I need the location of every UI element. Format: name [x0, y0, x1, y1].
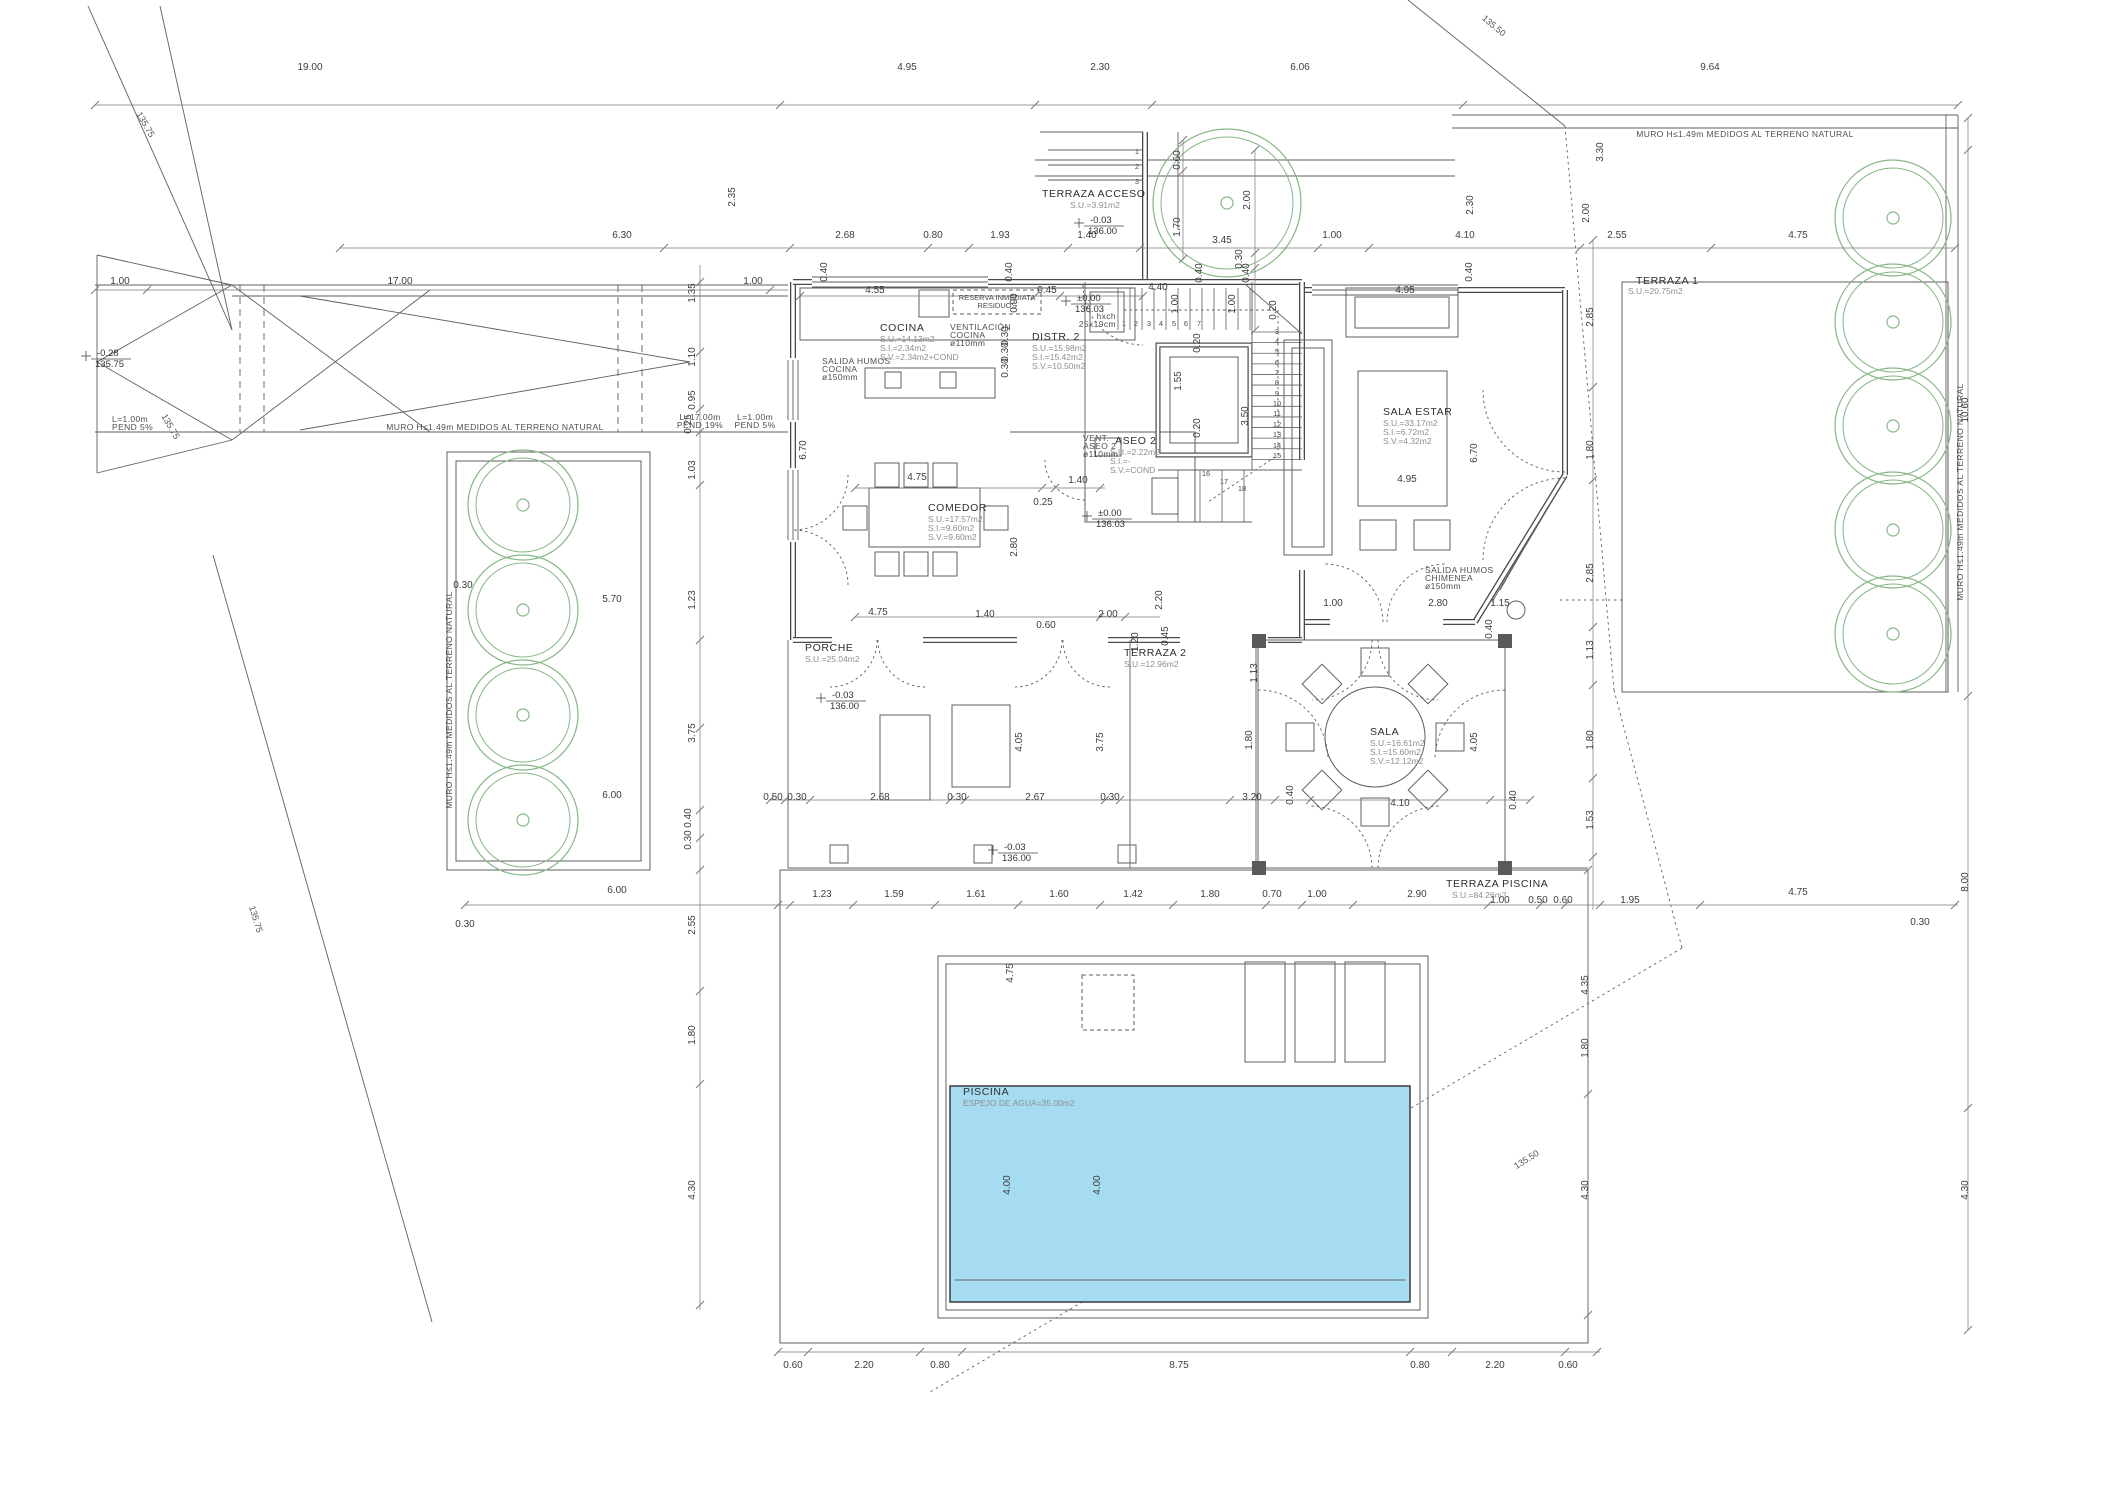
- plan-line: [160, 6, 232, 330]
- dimension-label: 0.60: [1553, 895, 1573, 906]
- tree-outer: [468, 765, 578, 875]
- tree-outer: [1835, 472, 1951, 588]
- floor-plan-page: 19.004.952.306.069.646.302.680.801.931.4…: [0, 0, 2119, 1497]
- tree-trunk: [1887, 212, 1899, 224]
- tree-trunk: [1887, 420, 1899, 432]
- plan-rect: [880, 715, 930, 800]
- stair-number: 4: [1275, 337, 1279, 346]
- dimension-label: 1.40: [975, 609, 995, 620]
- dimension-label: 4.00: [1092, 1175, 1103, 1195]
- plan-line: [1500, 510, 1546, 590]
- tree-trunk: [517, 709, 529, 721]
- dimension-label: 1.13: [1585, 640, 1596, 660]
- dimension-label: 4.30: [1960, 1180, 1971, 1200]
- dashed-detail: [1082, 975, 1134, 1030]
- door-arc: [1483, 390, 1565, 472]
- tree-inner: [1843, 376, 1943, 476]
- tree-icon: [1835, 576, 1951, 692]
- tree-inner: [1843, 168, 1943, 268]
- dimension-label: 4.95: [1395, 285, 1415, 296]
- dimension-label: 2.55: [1607, 230, 1627, 241]
- dimension-label: 0.80: [923, 230, 943, 241]
- dimension-label: 0.40: [1004, 262, 1015, 282]
- room-stat-aseo-2: S.V.=COND: [1110, 465, 1155, 475]
- door-arc: [1063, 640, 1110, 687]
- dimension-label: 0.45: [1037, 285, 1057, 296]
- dimension-label: 1.00: [1323, 598, 1343, 609]
- dimension-label: 0.30: [1910, 917, 1930, 928]
- contour-label: 135.50: [1512, 1148, 1541, 1171]
- door-arc: [1258, 690, 1328, 760]
- dimension-label: 2.68: [835, 230, 855, 241]
- dimension-label: 0.30: [1100, 792, 1120, 803]
- dimension-label: 4.95: [897, 62, 917, 73]
- stair-number: 13: [1273, 430, 1281, 439]
- dimension-label: 1.80: [1244, 730, 1255, 750]
- tree-inner: [476, 563, 570, 657]
- dimension-label: 0.80: [1410, 1360, 1430, 1371]
- elevation-bottom: 136.03: [1075, 304, 1104, 315]
- stair-number: 3: [1135, 177, 1139, 186]
- dimension-label: 9.64: [1700, 62, 1720, 73]
- elevation-bottom: 136.00: [1088, 226, 1117, 237]
- plan-rect: [1361, 648, 1389, 676]
- room-stat-piscina: ESPEJO DE AGUA=35.00m2: [963, 1098, 1075, 1108]
- plan-rect: [1360, 520, 1396, 550]
- dimension-label: 1.00: [1307, 889, 1327, 900]
- stair-number: 14: [1273, 441, 1281, 450]
- stair-number: 10: [1273, 399, 1281, 408]
- plan-rect: [885, 372, 901, 388]
- dimension-label: 17.00: [387, 276, 412, 287]
- dimension-label: 6.00: [602, 790, 622, 801]
- tree-trunk: [1887, 628, 1899, 640]
- plan-rect: [1284, 340, 1332, 555]
- wall-rect: [1158, 345, 1250, 455]
- plan-rect: [1622, 282, 1948, 692]
- plan-line: [300, 362, 690, 430]
- dimension-label: 3.20: [1242, 792, 1262, 803]
- dimension-label: 6.06: [1290, 62, 1310, 73]
- dimension-label: 0.45: [1160, 626, 1171, 646]
- stair-number: 6: [1184, 319, 1188, 328]
- plan-rect: [1436, 723, 1464, 751]
- stair-number: 2: [1135, 162, 1139, 171]
- plan-rect: [940, 372, 956, 388]
- dimension-label: 1.70: [1172, 217, 1183, 237]
- dimension-label: 1.00: [1227, 294, 1238, 314]
- dimension-label: 3.75: [1095, 732, 1106, 752]
- room-stat-distribuidor-2: S.V.=10.50m2: [1032, 361, 1086, 371]
- annotation-reserva-residuos: RESIDUOS: [977, 301, 1016, 310]
- elevation-top: -0.03: [832, 690, 854, 701]
- dimension-label: 2.20: [1154, 590, 1165, 610]
- plan-rect: [456, 461, 641, 861]
- dimension-label: 0.25: [1033, 497, 1053, 508]
- tree-icon: [468, 555, 578, 665]
- plan-line: [213, 555, 432, 1322]
- dimension-label: 1.55: [1173, 371, 1184, 391]
- contour-label: 135.50: [1480, 13, 1508, 38]
- plan-rect: [1152, 478, 1178, 514]
- dimension-label: 1.00: [1322, 230, 1342, 241]
- dimension-label: 4.75: [1788, 230, 1808, 241]
- dimension-label: 1.80: [1585, 440, 1596, 460]
- annotation-muro-top: MURO H≤1.49m MEDIDOS AL TERRENO NATURAL: [1636, 129, 1854, 139]
- tree-inner: [476, 668, 570, 762]
- dimension-label: 2.80: [1428, 598, 1448, 609]
- stair-number: 15: [1273, 451, 1281, 460]
- contour-labels: 135.75135.75135.75135.50135.50: [134, 13, 1540, 1171]
- room-stat-sala: S.V.=12.12m2: [1370, 756, 1424, 766]
- dimension-label: 0.50: [1528, 895, 1548, 906]
- dimension-label: 0.40: [1484, 619, 1495, 639]
- dimension-label: 0.40: [819, 262, 830, 282]
- tree-icon: [1835, 264, 1951, 380]
- stair-number: 7: [1275, 368, 1279, 377]
- dimension-label: 2.30: [1090, 62, 1110, 73]
- tree-icon: [468, 450, 578, 560]
- dimension-label: 1.35: [687, 283, 698, 303]
- annotation-muro-left-vert: MURO H≤1.49m MEDIDOS AL TERRENO NATURAL: [444, 591, 454, 809]
- floor-plan-canvas: 19.004.952.306.069.646.302.680.801.931.4…: [0, 0, 2119, 1497]
- tree-icon: [1835, 368, 1951, 484]
- room-stat-comedor: S.V.=9.60m2: [928, 532, 977, 542]
- dimension-label: 4.75: [1005, 963, 1016, 983]
- room-stat-porche: S.U.=25.04m2: [805, 654, 860, 664]
- plan-rect: [933, 552, 957, 576]
- stair-number: 1: [1122, 319, 1126, 328]
- plan-rect: [919, 290, 949, 317]
- dimension-label: 0.70: [1262, 889, 1282, 900]
- room-label-cocina: COCINA: [880, 322, 924, 334]
- dimension-label: 8.00: [1960, 872, 1971, 892]
- tree-outer: [1835, 576, 1951, 692]
- plan-geometry: [88, 0, 1972, 1392]
- dimension-label: 4.30: [1580, 1180, 1591, 1200]
- dimension-label: 4.10: [1390, 798, 1410, 809]
- dimension-label: 1.60: [1049, 889, 1069, 900]
- plan-rect: [1345, 962, 1385, 1062]
- dimension-label: 2.90: [1407, 889, 1427, 900]
- dimension-label: 1.80: [687, 1025, 698, 1045]
- plan-rect: [1414, 520, 1450, 550]
- dimension-label: 4.05: [1014, 732, 1025, 752]
- contour-label: 135.75: [247, 904, 265, 933]
- dimension-label: 6.30: [612, 230, 632, 241]
- door-arc: [1378, 806, 1440, 868]
- wall-rect-core: [1158, 345, 1250, 455]
- dimension-label: 1.15: [1490, 598, 1510, 609]
- dimension-label: 1.00: [110, 276, 130, 287]
- dimension-label: 0.40: [1194, 263, 1205, 283]
- dimension-label: 0.40: [1285, 785, 1296, 805]
- dimension-label: 1.00: [1170, 294, 1181, 314]
- annotation-ventilacion-cocina: ø110mm: [950, 338, 985, 348]
- elevation-top: -0.03: [1004, 842, 1026, 853]
- room-stat-cocina: S.V.=2.34m2+COND: [880, 352, 959, 362]
- stair-number: 8: [1275, 378, 1279, 387]
- plan-rect: [984, 506, 1008, 530]
- tree-trunk: [517, 814, 529, 826]
- dimension-label: 1.53: [1585, 810, 1596, 830]
- dimension-label: 0.40: [683, 808, 694, 828]
- tree-outer: [1835, 264, 1951, 380]
- pool-water: [950, 1086, 1410, 1302]
- plan-rect: [875, 552, 899, 576]
- dimension-label: 0.30: [455, 919, 475, 930]
- annotation-salida-humos-cocina: ø150mm: [822, 372, 858, 382]
- dimension-label: 4.75: [1788, 887, 1808, 898]
- dimension-label: 0.40: [1464, 262, 1475, 282]
- dimension-label: 3.50: [1240, 406, 1251, 426]
- dimension-label: 1.59: [884, 889, 904, 900]
- dimension-label: 6.00: [607, 885, 627, 896]
- stair-number: 16: [1202, 469, 1210, 478]
- dimension-label: 2.00: [1581, 203, 1592, 223]
- elevation-marker-elev-calle: -0.28135.75: [81, 348, 131, 370]
- dimension-label: 0.60: [1558, 1360, 1578, 1371]
- tree-outer: [1835, 160, 1951, 276]
- dimension-label: 1.10: [687, 347, 698, 367]
- dimension-label: 1.00: [743, 276, 763, 287]
- annotation-rampa-acceso: PEND 5%: [112, 422, 153, 432]
- dimension-label: 4.05: [1469, 732, 1480, 752]
- room-stat-terraza-piscina: S.U.=84.26m2: [1452, 890, 1507, 900]
- dimension-label: 0.50: [763, 792, 783, 803]
- plan-line: [232, 290, 430, 440]
- dimension-label: 3.45: [1212, 235, 1232, 246]
- dimension-label: 4.40: [1148, 282, 1168, 293]
- plan-line: [97, 440, 232, 473]
- room-label-terraza-piscina: TERRAZA PISCINA: [1446, 878, 1548, 890]
- plan-rect: [830, 845, 848, 863]
- elevation-top: ±0.00: [1077, 293, 1101, 304]
- elevation-marker-elev-terraza: -0.03136.00: [988, 842, 1038, 864]
- room-stat-terraza-acceso: S.U.=3.91m2: [1070, 200, 1120, 210]
- plan-rect: [1295, 962, 1335, 1062]
- dimension-label: 2.20: [854, 1360, 874, 1371]
- tree-inner: [1843, 272, 1943, 372]
- tree-outer: [468, 450, 578, 560]
- tree-inner: [1843, 584, 1943, 684]
- dimension-label: 1.42: [1123, 889, 1143, 900]
- dimension-label: 0.30: [787, 792, 807, 803]
- annotation-vent-aseo-2: ø110mm: [1083, 449, 1118, 459]
- tree-inner: [476, 458, 570, 552]
- door-arc: [1015, 640, 1062, 687]
- stair-number: 12: [1273, 420, 1281, 429]
- tree-trunk: [517, 499, 529, 511]
- stair-number: 11: [1273, 409, 1281, 418]
- dimension-label: 0.40: [1241, 263, 1252, 283]
- dimension-label: 6.70: [798, 440, 809, 460]
- door-arc: [793, 530, 848, 585]
- door-arc: [878, 640, 925, 687]
- stair-number: 6: [1275, 358, 1279, 367]
- door-arc: [1312, 640, 1372, 700]
- room-label-distribuidor-2: DISTR. 2: [1032, 331, 1080, 343]
- stair-number: 9: [1275, 389, 1279, 398]
- tree-outer: [468, 660, 578, 770]
- dimension-label: 2.85: [1585, 563, 1596, 583]
- room-label-terraza-2: TERRAZA 2: [1124, 647, 1187, 659]
- door-arc: [1325, 564, 1383, 622]
- dimension-label: 0.30: [453, 580, 473, 591]
- elevation-bottom: 136.03: [1096, 519, 1125, 530]
- plan-rect: [1361, 798, 1389, 826]
- tree-outer: [468, 555, 578, 665]
- dimension-label: 0.20: [1268, 300, 1279, 320]
- stair-number: 17: [1220, 477, 1228, 486]
- chair: [1302, 770, 1342, 810]
- door-arc: [793, 475, 848, 530]
- plan-rect: [1118, 845, 1136, 863]
- contour-label: 135.75: [159, 412, 181, 441]
- dimension-label: 1.13: [1249, 663, 1260, 683]
- room-label-terraza-acceso: TERRAZA ACCESO: [1042, 188, 1146, 200]
- plan-rect: [933, 463, 957, 487]
- dimension-label: 2.00: [1098, 609, 1118, 620]
- dimension-label: 19.00: [297, 62, 322, 73]
- tree-icon: [1835, 160, 1951, 276]
- dimension-label: 4.30: [687, 1180, 698, 1200]
- room-label-sala-estar: SALA ESTAR: [1383, 406, 1452, 418]
- dimension-label: 1.80: [1585, 730, 1596, 750]
- plan-rect: [843, 506, 867, 530]
- dimension-label: 1.80: [1580, 1038, 1591, 1058]
- column: [1498, 861, 1512, 875]
- dimension-label: 2.68: [870, 792, 890, 803]
- dimension-label: 8.75: [1169, 1360, 1189, 1371]
- dimension-label: 1.03: [687, 460, 698, 480]
- stair-number: 3: [1147, 319, 1151, 328]
- dimension-label: 1.23: [687, 590, 698, 610]
- elevation-marker-elev-centro: ±0.00136.03: [1082, 508, 1132, 530]
- dimension-label: 1.93: [990, 230, 1010, 241]
- room-label-comedor: COMEDOR: [928, 502, 987, 514]
- dimension-label: 0.60: [783, 1360, 803, 1371]
- wall-line-core: [1475, 475, 1565, 622]
- tree-trunk: [1887, 316, 1899, 328]
- dimension-label: 1.80: [1200, 889, 1220, 900]
- dimension-label: 3.30: [1595, 142, 1606, 162]
- dimension-label: 0.30: [947, 792, 967, 803]
- dimension-label: 0.60: [1036, 620, 1056, 631]
- annotation-labels: MURO H≤1.49m MEDIDOS AL TERRENO NATURALM…: [112, 129, 1965, 809]
- dimension-label: 0.20: [1192, 333, 1203, 353]
- plan-rect: [1355, 297, 1449, 328]
- dimension-label: 4.10: [1455, 230, 1475, 241]
- plan-rect: [1170, 357, 1238, 443]
- room-label-porche: PORCHE: [805, 642, 854, 654]
- dimension-label: 0.30: [1000, 358, 1011, 378]
- stair-number: 7: [1197, 319, 1201, 328]
- plan-rect: [952, 705, 1010, 787]
- door-arc: [1378, 640, 1438, 700]
- dimension-label: 0.20: [1192, 418, 1203, 438]
- dimension-label: 2.55: [687, 915, 698, 935]
- dimension-label: 5.70: [602, 594, 622, 605]
- stair-number: 5: [1172, 319, 1176, 328]
- dimension-label: 3.75: [687, 723, 698, 743]
- tree-icon: [468, 660, 578, 770]
- dimension-label: 0.95: [687, 390, 698, 410]
- elevation-top: -0.28: [97, 348, 119, 359]
- stair-number: 18: [1238, 484, 1246, 493]
- plan-rect: [1286, 723, 1314, 751]
- elevation-top: ±0.00: [1098, 508, 1122, 519]
- dimension-label: 4.00: [1002, 1175, 1013, 1195]
- dimension-label: 2.67: [1025, 792, 1045, 803]
- column: [1498, 634, 1512, 648]
- dimension-label: 4.75: [868, 607, 888, 618]
- room-stat-terraza-2: S.U.=12.96m2: [1124, 659, 1179, 669]
- room-label-aseo-2: ASEO 2: [1115, 435, 1157, 447]
- plan-rect: [1245, 962, 1285, 1062]
- elevation-bottom: 136.00: [1002, 853, 1031, 864]
- annotation-muro-right-vert: MURO H≤1.49m MEDIDOS AL TERRENO NATURAL: [1955, 383, 1965, 601]
- dimension-label: 2.85: [1585, 307, 1596, 327]
- stair-number: 1: [1135, 147, 1139, 156]
- dimension-label: 1.23: [812, 889, 832, 900]
- tree-trunk: [517, 604, 529, 616]
- stair-number: 2: [1134, 319, 1138, 328]
- dimension-label: 6.70: [1469, 443, 1480, 463]
- tree-icon: [468, 765, 578, 875]
- dimension-label: 4.95: [1397, 474, 1417, 485]
- tree-inner: [1843, 480, 1943, 580]
- dimension-label: 0.40: [1508, 790, 1519, 810]
- plan-rect: [1292, 348, 1324, 547]
- tree-icon: [1835, 472, 1951, 588]
- annotation-stair-tread-size: 25x19cm: [1079, 319, 1116, 329]
- dimension-label: 2.80: [1009, 537, 1020, 557]
- room-label-piscina: PISCINA: [963, 1086, 1009, 1098]
- elevation-bottom: 136.00: [830, 701, 859, 712]
- chair: [1408, 770, 1448, 810]
- elevation-marker-elev-porche: -0.03136.00: [816, 690, 866, 712]
- tree-inner: [476, 773, 570, 867]
- plan-line: [300, 296, 690, 362]
- dimension-label: 1.40: [1068, 475, 1088, 486]
- dimension-label: 2.00: [1242, 190, 1253, 210]
- annotation-rampa-larga: PEND 19%: [677, 420, 723, 430]
- dimension-label: 4.35: [1580, 975, 1591, 995]
- dimension-label: 1.95: [1620, 895, 1640, 906]
- dimension-label: 4.55: [865, 285, 885, 296]
- plan-rect: [875, 463, 899, 487]
- tree-outer: [1835, 368, 1951, 484]
- plan-rect: [904, 552, 928, 576]
- tree-trunk: [1221, 197, 1233, 209]
- dimension-label: 4.75: [907, 472, 927, 483]
- dimension-label: 2.30: [1465, 195, 1476, 215]
- room-label-sala: SALA: [1370, 726, 1399, 738]
- room-stat-terraza-1: S.U.=20.75m2: [1628, 286, 1683, 296]
- column: [1252, 634, 1266, 648]
- dimension-label: 0.60: [1172, 150, 1183, 170]
- annotation-rampa-corta: PEND 5%: [734, 420, 775, 430]
- dimension-label: 1.61: [966, 889, 986, 900]
- column: [1252, 861, 1266, 875]
- annotation-salida-humos-chimenea: ø150mm: [1425, 581, 1461, 591]
- dimension-label: 0.30: [683, 830, 694, 850]
- dimension-label: 0.80: [930, 1360, 950, 1371]
- chair: [1408, 664, 1448, 704]
- boundary-dotted-line: [1614, 690, 1682, 948]
- stair-number: 3: [1275, 327, 1279, 336]
